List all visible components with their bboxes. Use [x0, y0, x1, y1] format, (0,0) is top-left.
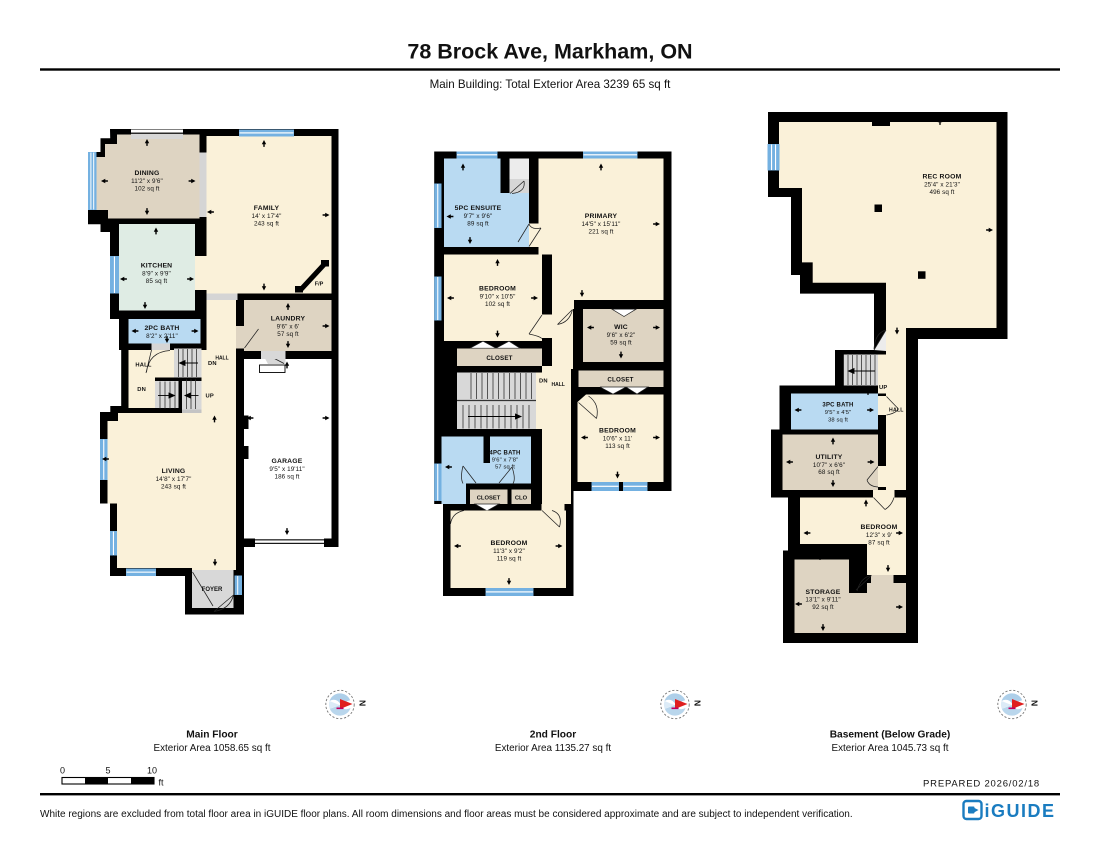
svg-text:9'7" x 9'6": 9'7" x 9'6"	[464, 213, 493, 220]
svg-text:2PC BATH: 2PC BATH	[144, 325, 179, 332]
svg-text:Basement (Below Grade): Basement (Below Grade)	[830, 730, 951, 741]
svg-text:243 sq ft: 243 sq ft	[254, 221, 279, 228]
svg-text:REC ROOM: REC ROOM	[923, 174, 962, 181]
svg-text:HALL: HALL	[215, 356, 228, 362]
svg-text:10'7" x 6'6": 10'7" x 6'6"	[813, 462, 845, 469]
svg-text:CLOSET: CLOSET	[607, 377, 633, 384]
svg-text:KITCHEN: KITCHEN	[141, 263, 173, 270]
svg-text:38 sq ft: 38 sq ft	[828, 418, 848, 424]
svg-text:BEDROOM: BEDROOM	[479, 286, 516, 293]
svg-text:113 sq ft: 113 sq ft	[605, 443, 630, 450]
svg-text:UP: UP	[879, 385, 887, 391]
svg-text:Main Building: Total Exterior: Main Building: Total Exterior Area 3239 …	[430, 78, 672, 91]
svg-text:CLOSET: CLOSET	[486, 355, 512, 362]
svg-text:5PC ENSUITE: 5PC ENSUITE	[455, 205, 502, 212]
svg-text:12'3" x 9': 12'3" x 9'	[866, 532, 892, 539]
svg-text:HALL: HALL	[889, 408, 904, 414]
svg-text:10: 10	[147, 766, 157, 776]
svg-text:LAUNDRY: LAUNDRY	[271, 316, 306, 323]
svg-text:9'10" x 10'5": 9'10" x 10'5"	[480, 294, 516, 301]
svg-text:9'5" x 4'5": 9'5" x 4'5"	[825, 410, 851, 416]
svg-text:DINING: DINING	[135, 170, 160, 177]
svg-text:HALL: HALL	[135, 363, 152, 369]
svg-text:Main Floor: Main Floor	[186, 730, 238, 741]
svg-text:102 sq ft: 102 sq ft	[485, 301, 510, 308]
svg-text:9'5" x 19'11": 9'5" x 19'11"	[269, 466, 304, 473]
svg-text:DN: DN	[137, 387, 146, 393]
svg-text:HALL: HALL	[552, 382, 565, 388]
svg-text:8'9" x 9'9": 8'9" x 9'9"	[142, 271, 171, 278]
svg-text:11'3" x 9'2": 11'3" x 9'2"	[493, 548, 525, 555]
svg-text:78 Brock Ave, Markham, ON: 78 Brock Ave, Markham, ON	[407, 40, 692, 64]
svg-text:CLOSET: CLOSET	[477, 496, 501, 502]
svg-text:LIVING: LIVING	[162, 468, 186, 475]
svg-text:102 sq ft: 102 sq ft	[134, 186, 159, 193]
svg-text:14'5" x 15'11": 14'5" x 15'11"	[582, 221, 621, 228]
svg-text:UTILITY: UTILITY	[815, 454, 842, 461]
svg-text:57 sq ft: 57 sq ft	[495, 465, 515, 471]
svg-text:186 sq ft: 186 sq ft	[274, 474, 299, 481]
svg-text:DN: DN	[539, 379, 548, 385]
svg-text:F/P: F/P	[315, 282, 324, 288]
svg-text:UP: UP	[206, 394, 214, 400]
svg-text:59 sq ft: 59 sq ft	[610, 340, 632, 347]
svg-text:8'2" x 2'11": 8'2" x 2'11"	[146, 333, 178, 340]
svg-text:11'2" x 9'6": 11'2" x 9'6"	[131, 178, 163, 185]
svg-text:GARAGE: GARAGE	[271, 458, 302, 465]
svg-text:13'1" x 9'11": 13'1" x 9'11"	[805, 597, 840, 604]
svg-text:221 sq ft: 221 sq ft	[588, 229, 613, 236]
svg-text:89 sq ft: 89 sq ft	[467, 221, 489, 228]
svg-text:68 sq ft: 68 sq ft	[818, 469, 840, 476]
svg-text:92 sq ft: 92 sq ft	[812, 604, 834, 611]
svg-text:Exterior Area 1058.65 sq ft: Exterior Area 1058.65 sq ft	[154, 743, 271, 754]
svg-text:87 sq ft: 87 sq ft	[868, 540, 890, 547]
svg-text:FAMILY: FAMILY	[254, 205, 280, 212]
svg-text:14' x 17'4": 14' x 17'4"	[252, 213, 282, 220]
svg-text:White regions are excluded fro: White regions are excluded from total fl…	[40, 809, 853, 820]
svg-text:iGUIDE: iGUIDE	[985, 801, 1056, 821]
svg-text:0: 0	[60, 766, 65, 776]
svg-text:PRIMARY: PRIMARY	[585, 213, 618, 220]
svg-text:496 sq ft: 496 sq ft	[929, 189, 954, 196]
svg-text:Exterior Area 1135.27 sq ft: Exterior Area 1135.27 sq ft	[495, 743, 611, 754]
svg-text:5: 5	[105, 766, 110, 776]
svg-text:119 sq ft: 119 sq ft	[497, 556, 522, 563]
svg-text:FOYER: FOYER	[202, 587, 223, 593]
svg-text:WIC: WIC	[614, 324, 628, 331]
svg-text:ft: ft	[159, 778, 165, 788]
svg-text:PREPARED 2026/02/18: PREPARED 2026/02/18	[923, 779, 1040, 790]
svg-text:BEDROOM: BEDROOM	[599, 428, 636, 435]
svg-text:Exterior Area 1045.73 sq ft: Exterior Area 1045.73 sq ft	[832, 743, 949, 754]
svg-text:3PC BATH: 3PC BATH	[822, 403, 853, 409]
svg-text:DN: DN	[208, 361, 217, 367]
svg-text:9'6" x 7'8": 9'6" x 7'8"	[492, 458, 518, 464]
svg-text:243 sq ft: 243 sq ft	[161, 484, 186, 491]
svg-text:9'6" x 6'2": 9'6" x 6'2"	[607, 332, 636, 339]
svg-text:BEDROOM: BEDROOM	[861, 524, 898, 531]
svg-text:14'8" x 17'7": 14'8" x 17'7"	[156, 476, 192, 483]
svg-text:4PC BATH: 4PC BATH	[489, 451, 520, 457]
svg-text:CLO: CLO	[515, 496, 528, 502]
svg-text:2nd Floor: 2nd Floor	[530, 730, 576, 741]
svg-text:STORAGE: STORAGE	[806, 589, 841, 596]
svg-text:10'6" x 11': 10'6" x 11'	[603, 436, 632, 443]
svg-text:25'4" x 21'3": 25'4" x 21'3"	[924, 182, 960, 189]
svg-text:85 sq ft: 85 sq ft	[146, 278, 168, 285]
svg-text:57 sq ft: 57 sq ft	[277, 331, 299, 338]
svg-text:BEDROOM: BEDROOM	[491, 540, 528, 547]
svg-text:9'6" x 6': 9'6" x 6'	[277, 324, 300, 331]
